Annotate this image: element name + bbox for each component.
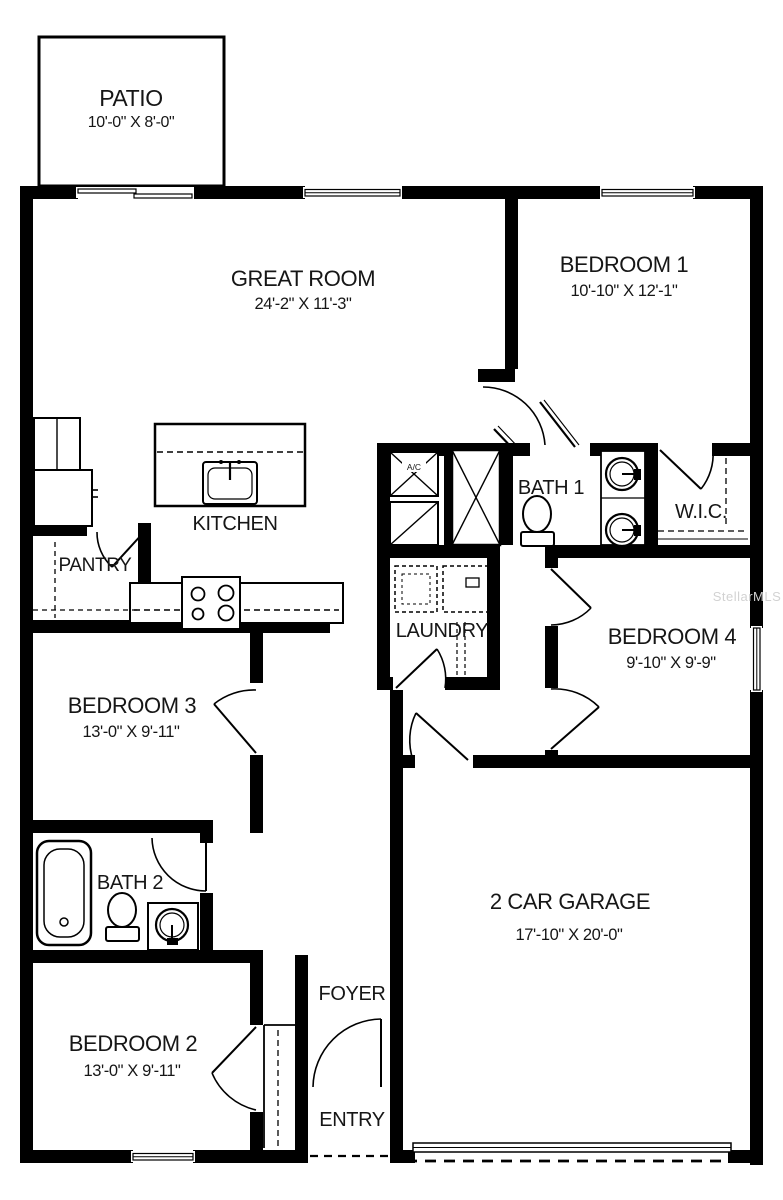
room-dims-bedroom3: 13'-0" X 9'-11" (82, 723, 180, 741)
room-dims-garage: 17'-10" X 20'-0" (515, 926, 623, 944)
room-label-bedroom4: BEDROOM 4 (608, 624, 737, 649)
room-dims-bedroom4: 9'-10" X 9'-9" (626, 654, 716, 672)
door-swing-garage-entry (410, 713, 468, 760)
watermark-text: StellarMLS (713, 589, 782, 604)
room-label-foyer: FOYER (319, 983, 386, 1005)
double-vanity-fixture (601, 451, 645, 546)
window-bedroom1 (600, 187, 695, 198)
room-label-kitchen: KITCHEN (193, 513, 278, 535)
patio-outline (39, 37, 224, 186)
garage-overhead-door (406, 1143, 747, 1161)
room-label-patio: PATIO (99, 85, 163, 111)
floor-plan-page: A/C (0, 0, 783, 1200)
window-bedroom4 (751, 626, 762, 692)
window-bedroom2 (131, 1151, 195, 1162)
room-label-great-room: GREAT ROOM (231, 266, 375, 291)
room-label-wic: W.I.C. (675, 501, 727, 523)
room-label-garage: 2 CAR GARAGE (490, 889, 650, 914)
room-dims-great-room: 24'-2" X 11'-3" (254, 295, 352, 313)
room-label-pantry: PANTRY (59, 555, 133, 576)
pantry-shelving (33, 542, 138, 618)
kitchen-sink-fixture (203, 460, 257, 504)
room-label-bedroom1: BEDROOM 1 (560, 252, 689, 277)
room-label-bedroom2: BEDROOM 2 (69, 1031, 198, 1056)
room-dims-bedroom1: 10'-10" X 12'-1" (570, 282, 678, 300)
door-swing-bedroom4-closet (551, 569, 591, 625)
door-swing-wic (660, 450, 713, 489)
ac-unit-label: A/C (407, 462, 421, 472)
bedroom2-closet (264, 1025, 295, 1148)
stove-fixture (182, 577, 240, 629)
floor-plan-canvas: A/C (0, 0, 783, 1200)
room-label-bath2: BATH 2 (97, 872, 163, 894)
kitchen-island (155, 424, 305, 506)
room-label-laundry: LAUNDRY (396, 620, 488, 642)
door-swing-bedroom3 (214, 690, 256, 753)
ac-closet: A/C (390, 452, 438, 545)
interior-walls (20, 199, 763, 1163)
room-dims-patio: 10'-0" X 8'-0" (88, 114, 175, 131)
bathtub-fixture (37, 841, 91, 945)
sliding-patio-door (76, 187, 194, 198)
room-label-entry: ENTRY (319, 1109, 384, 1131)
room-dims-bedroom2: 13'-0" X 9'-11" (83, 1062, 181, 1080)
room-label-bedroom3: BEDROOM 3 (68, 693, 197, 718)
door-swing-laundry (396, 649, 446, 688)
shower-fixture (452, 450, 500, 545)
kitchen-counter (130, 577, 343, 629)
refrigerator-and-cabinets (34, 418, 98, 526)
sink-fixture-bath2 (148, 903, 198, 950)
door-swing-bedroom2 (212, 1027, 256, 1110)
door-swing-front-entry (313, 1019, 381, 1087)
toilet-fixture-bath2 (106, 893, 139, 941)
door-swing-bedroom4 (551, 689, 599, 749)
wic-closet-rod (658, 458, 748, 539)
room-label-bath1: BATH 1 (518, 477, 584, 499)
door-swing-bedroom1 (483, 387, 579, 447)
window-great-room (303, 187, 402, 198)
toilet-fixture-bath1 (521, 496, 554, 546)
